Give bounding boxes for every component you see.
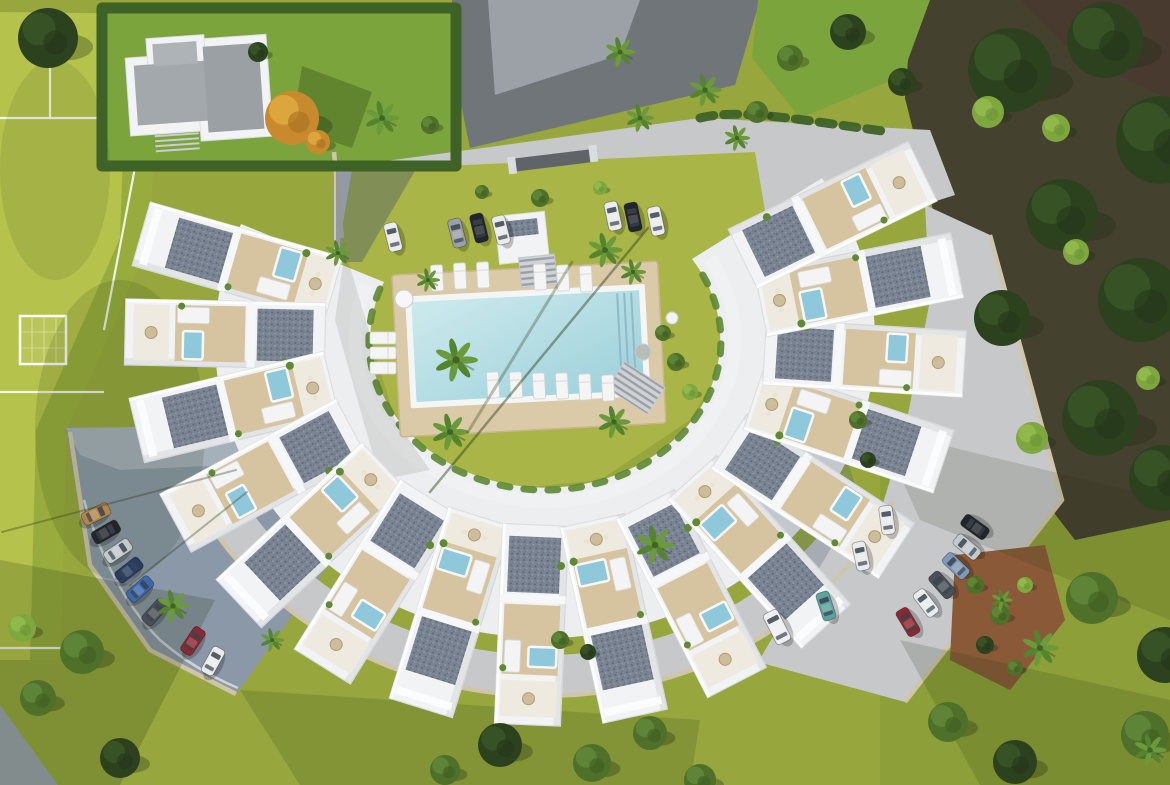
sun-lounger: [579, 266, 592, 293]
palm-crown: [1147, 747, 1152, 752]
terrace-table: [522, 692, 534, 704]
jacuzzi: [183, 331, 204, 359]
car-roof: [882, 517, 893, 526]
palm-crown: [611, 419, 616, 424]
palm-crown: [379, 115, 385, 121]
sun-lounger: [370, 347, 396, 359]
palm-crown: [1000, 598, 1004, 602]
palm-crown: [617, 49, 622, 54]
sun-lounger: [601, 375, 614, 402]
aerial-render: [0, 0, 1170, 785]
round-table: [395, 290, 413, 308]
palm-crown: [702, 87, 707, 92]
palm-crown: [735, 136, 739, 140]
palm-crown: [426, 278, 430, 282]
palm-crown: [170, 603, 175, 608]
round-table: [666, 312, 678, 324]
gravel-roof: [866, 246, 931, 308]
jacuzzi: [575, 559, 609, 587]
scene-svg: [0, 0, 1170, 785]
palm-crown: [631, 270, 635, 274]
terrace-table: [932, 356, 945, 369]
gravel-roof: [507, 536, 561, 594]
jacuzzi: [799, 288, 826, 322]
building-unit: [494, 524, 568, 727]
gravel-roof: [257, 309, 314, 362]
sun-lounger: [476, 262, 489, 289]
palm-crown: [652, 542, 658, 548]
sun-lounger: [453, 263, 466, 290]
palm-crown: [602, 247, 608, 253]
round-table: [635, 344, 651, 360]
palm-crown: [270, 638, 274, 642]
field-shade-2: [0, 60, 110, 280]
palm-crown: [1037, 645, 1043, 651]
jacuzzi: [886, 333, 908, 362]
palm-crown: [452, 356, 459, 363]
palm-crown: [638, 116, 643, 121]
jacuzzi: [528, 647, 557, 668]
sun-lounger: [555, 373, 568, 400]
sun-lounger: [532, 373, 545, 400]
sun-lounger: [370, 332, 396, 344]
palm-crown: [336, 251, 340, 255]
sun-lounger: [533, 264, 546, 291]
palm-crown: [447, 429, 453, 435]
sun-lounger: [578, 374, 591, 401]
sun-lounger: [370, 362, 396, 374]
gravel-roof: [775, 326, 834, 381]
roof-band: [246, 301, 255, 367]
terrace-table: [145, 326, 157, 338]
